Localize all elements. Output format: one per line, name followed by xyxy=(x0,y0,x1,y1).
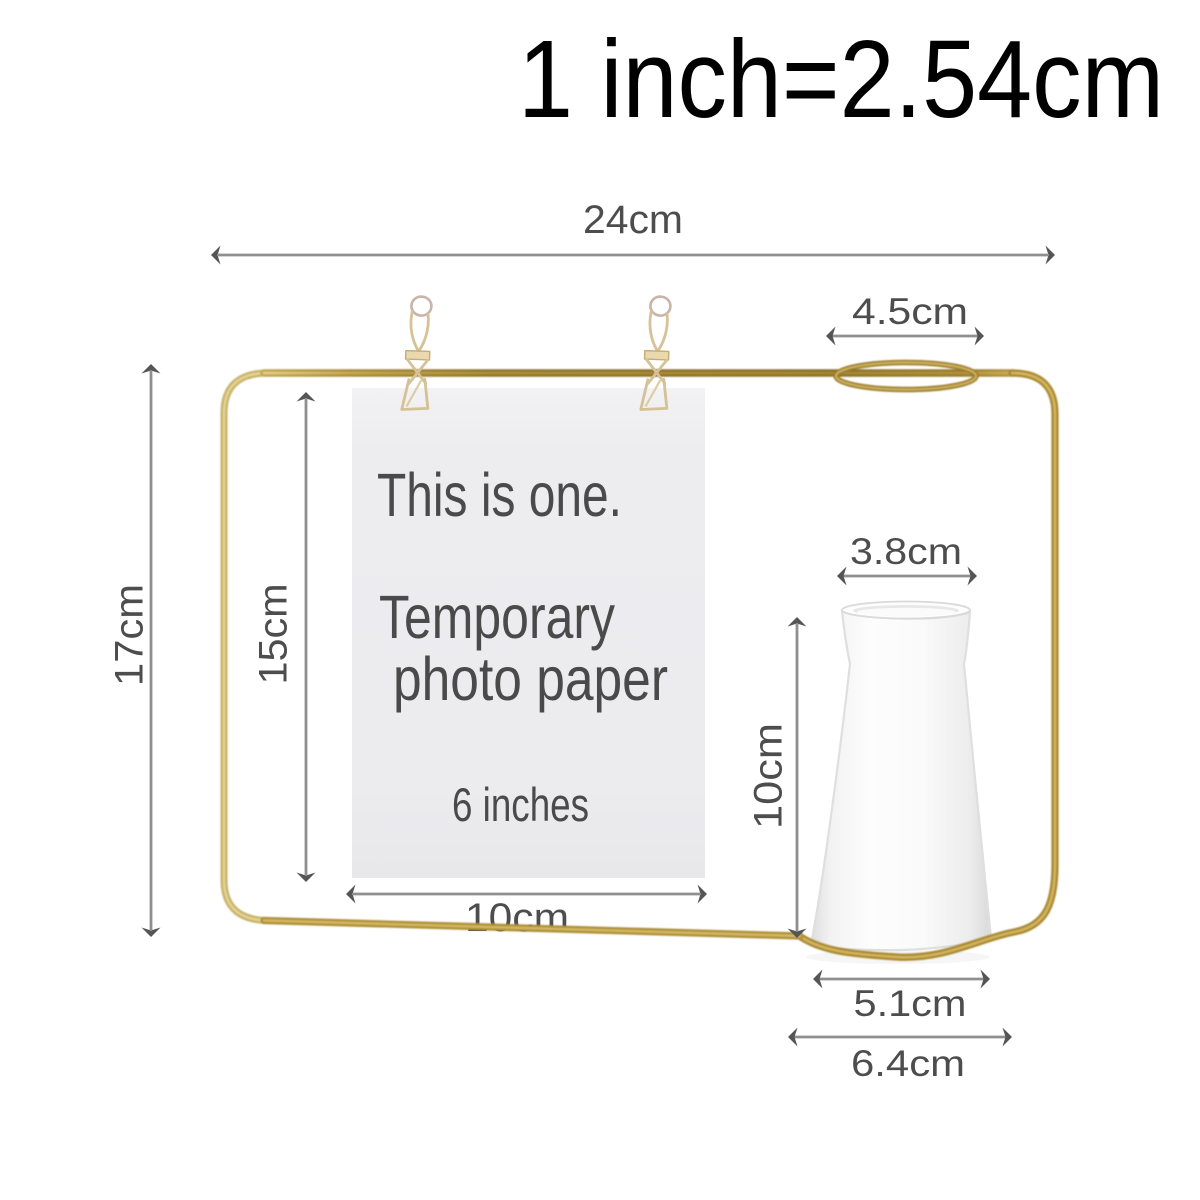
svg-text:4.5cm: 4.5cm xyxy=(852,291,968,332)
svg-text:1 inch=2.54cm: 1 inch=2.54cm xyxy=(518,18,1164,141)
svg-text:3.8cm: 3.8cm xyxy=(850,531,962,572)
svg-text:This is one.: This is one. xyxy=(377,461,622,529)
svg-text:Temporary: Temporary xyxy=(379,583,615,651)
svg-text:15cm: 15cm xyxy=(252,584,296,685)
svg-text:photo paper: photo paper xyxy=(393,645,668,713)
svg-text:5.1cm: 5.1cm xyxy=(854,983,967,1024)
svg-text:17cm: 17cm xyxy=(108,584,152,686)
svg-text:6.4cm: 6.4cm xyxy=(851,1043,965,1084)
svg-text:24cm: 24cm xyxy=(583,198,683,242)
svg-text:10cm: 10cm xyxy=(747,723,791,829)
svg-text:6 inches: 6 inches xyxy=(452,778,589,831)
svg-text:10cm: 10cm xyxy=(465,896,569,940)
